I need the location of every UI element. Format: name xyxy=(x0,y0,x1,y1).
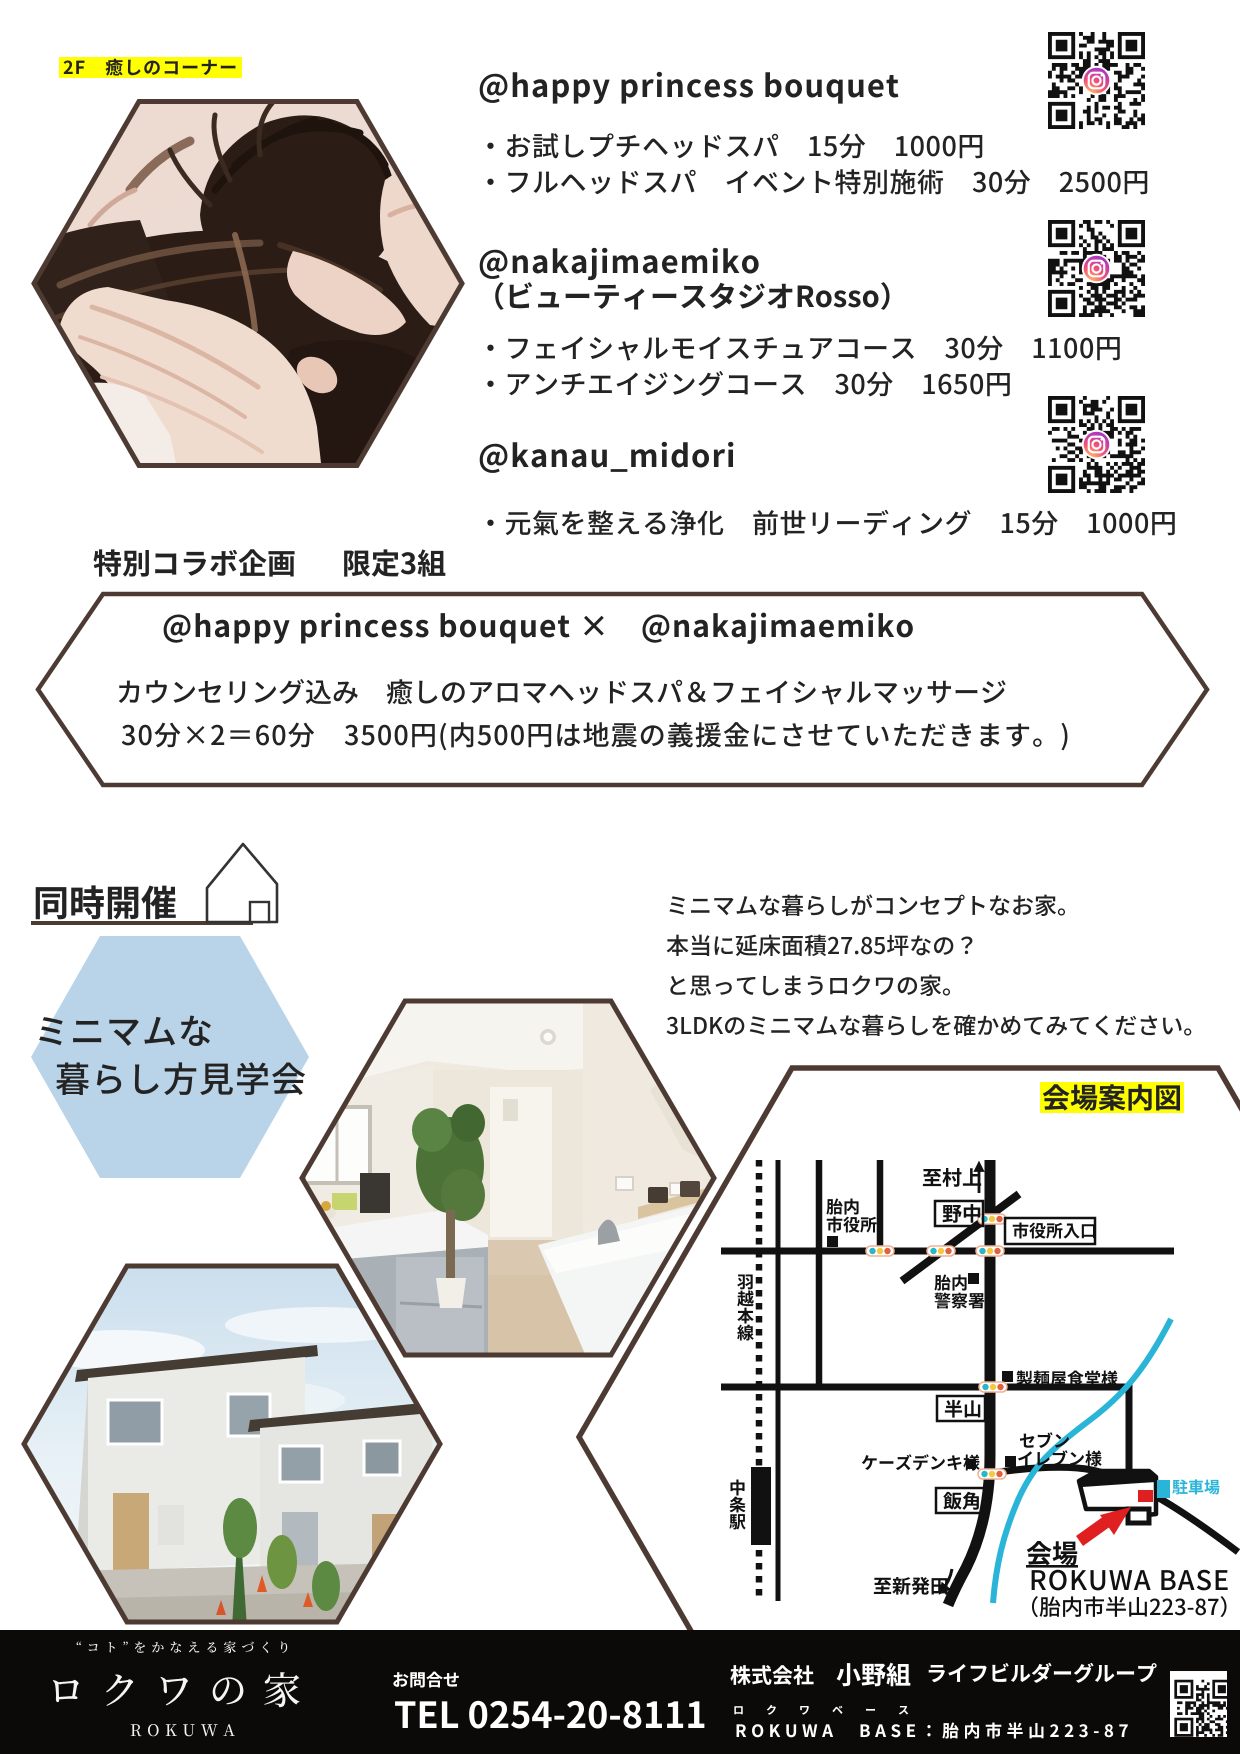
svg-text:（胎内市半山223-87）: （胎内市半山223-87） xyxy=(1017,1590,1240,1622)
svg-text:野中: 野中 xyxy=(942,1198,982,1227)
svg-text:至新発田: 至新発田 xyxy=(873,1572,949,1599)
svg-text:警察署: 警察署 xyxy=(934,1287,985,1312)
svg-text:市役所入口: 市役所入口 xyxy=(1012,1217,1097,1242)
svg-text:半山: 半山 xyxy=(944,1395,982,1422)
svg-text:イレブン様: イレブン様 xyxy=(1017,1445,1102,1470)
svg-text:線: 線 xyxy=(737,1319,754,1344)
svg-text:駅: 駅 xyxy=(729,1508,746,1533)
svg-text:至村上: 至村上 xyxy=(922,1162,982,1191)
svg-text:駐車場: 駐車場 xyxy=(1172,1474,1220,1498)
svg-text:飯角: 飯角 xyxy=(943,1487,981,1514)
svg-text:製麺屋食堂様: 製麺屋食堂様 xyxy=(1016,1365,1118,1390)
svg-text:市役所: 市役所 xyxy=(826,1211,877,1236)
svg-text:ケーズデンキ様: ケーズデンキ様 xyxy=(861,1449,980,1474)
